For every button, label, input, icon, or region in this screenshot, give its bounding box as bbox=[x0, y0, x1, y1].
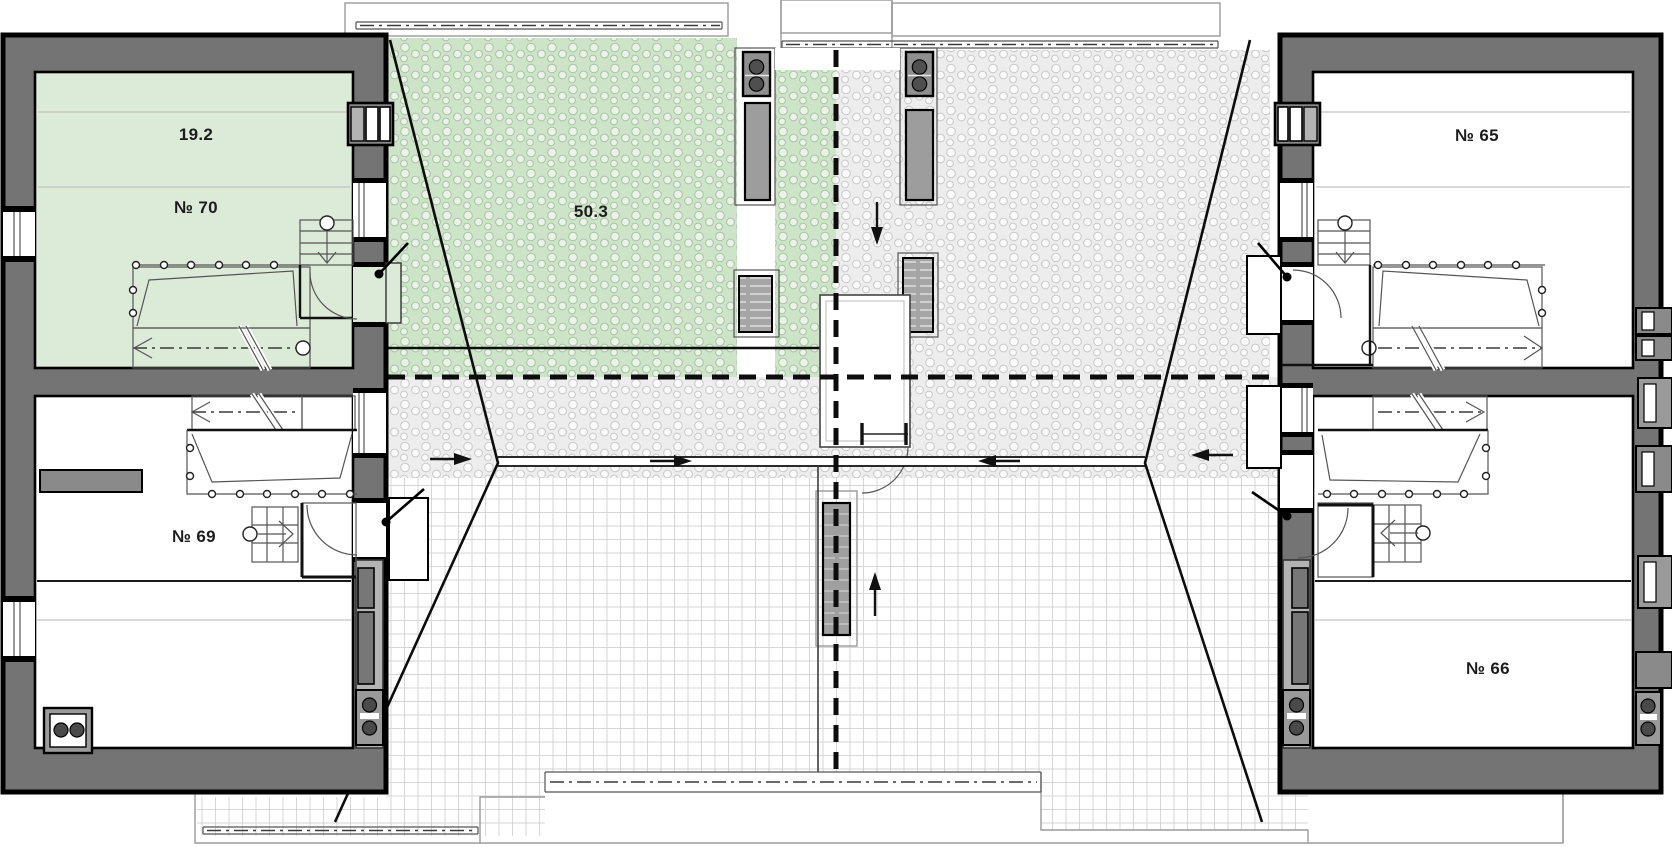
terrace-hotspot[interactable] bbox=[386, 38, 836, 377]
window-recess-66 bbox=[1280, 383, 1313, 437]
window-left-wall-upper bbox=[3, 206, 35, 262]
window-recess-65 bbox=[1280, 178, 1313, 242]
window-left-wall-lower bbox=[3, 596, 35, 662]
doorway-65 bbox=[1280, 262, 1313, 325]
stove-right-wall bbox=[1636, 692, 1661, 745]
doorway-69 bbox=[353, 498, 386, 562]
floor-plan-viewport: 19.2 № 70 № 69 50.3 № 65 № 66 bbox=[0, 0, 1672, 847]
unit-69-hotspot[interactable] bbox=[35, 396, 353, 748]
vent-stack-right bbox=[906, 52, 933, 200]
window-recess-70 bbox=[353, 178, 386, 242]
unit-65-hotspot[interactable] bbox=[1313, 72, 1633, 368]
doorway-66 bbox=[1280, 450, 1313, 513]
chimney-stack-left bbox=[356, 560, 383, 748]
chimney-stack-right bbox=[1283, 560, 1310, 748]
unit-66-hotspot[interactable] bbox=[1313, 396, 1633, 748]
window-recess-69 bbox=[353, 388, 386, 458]
unit-70-hotspot[interactable] bbox=[35, 72, 353, 368]
